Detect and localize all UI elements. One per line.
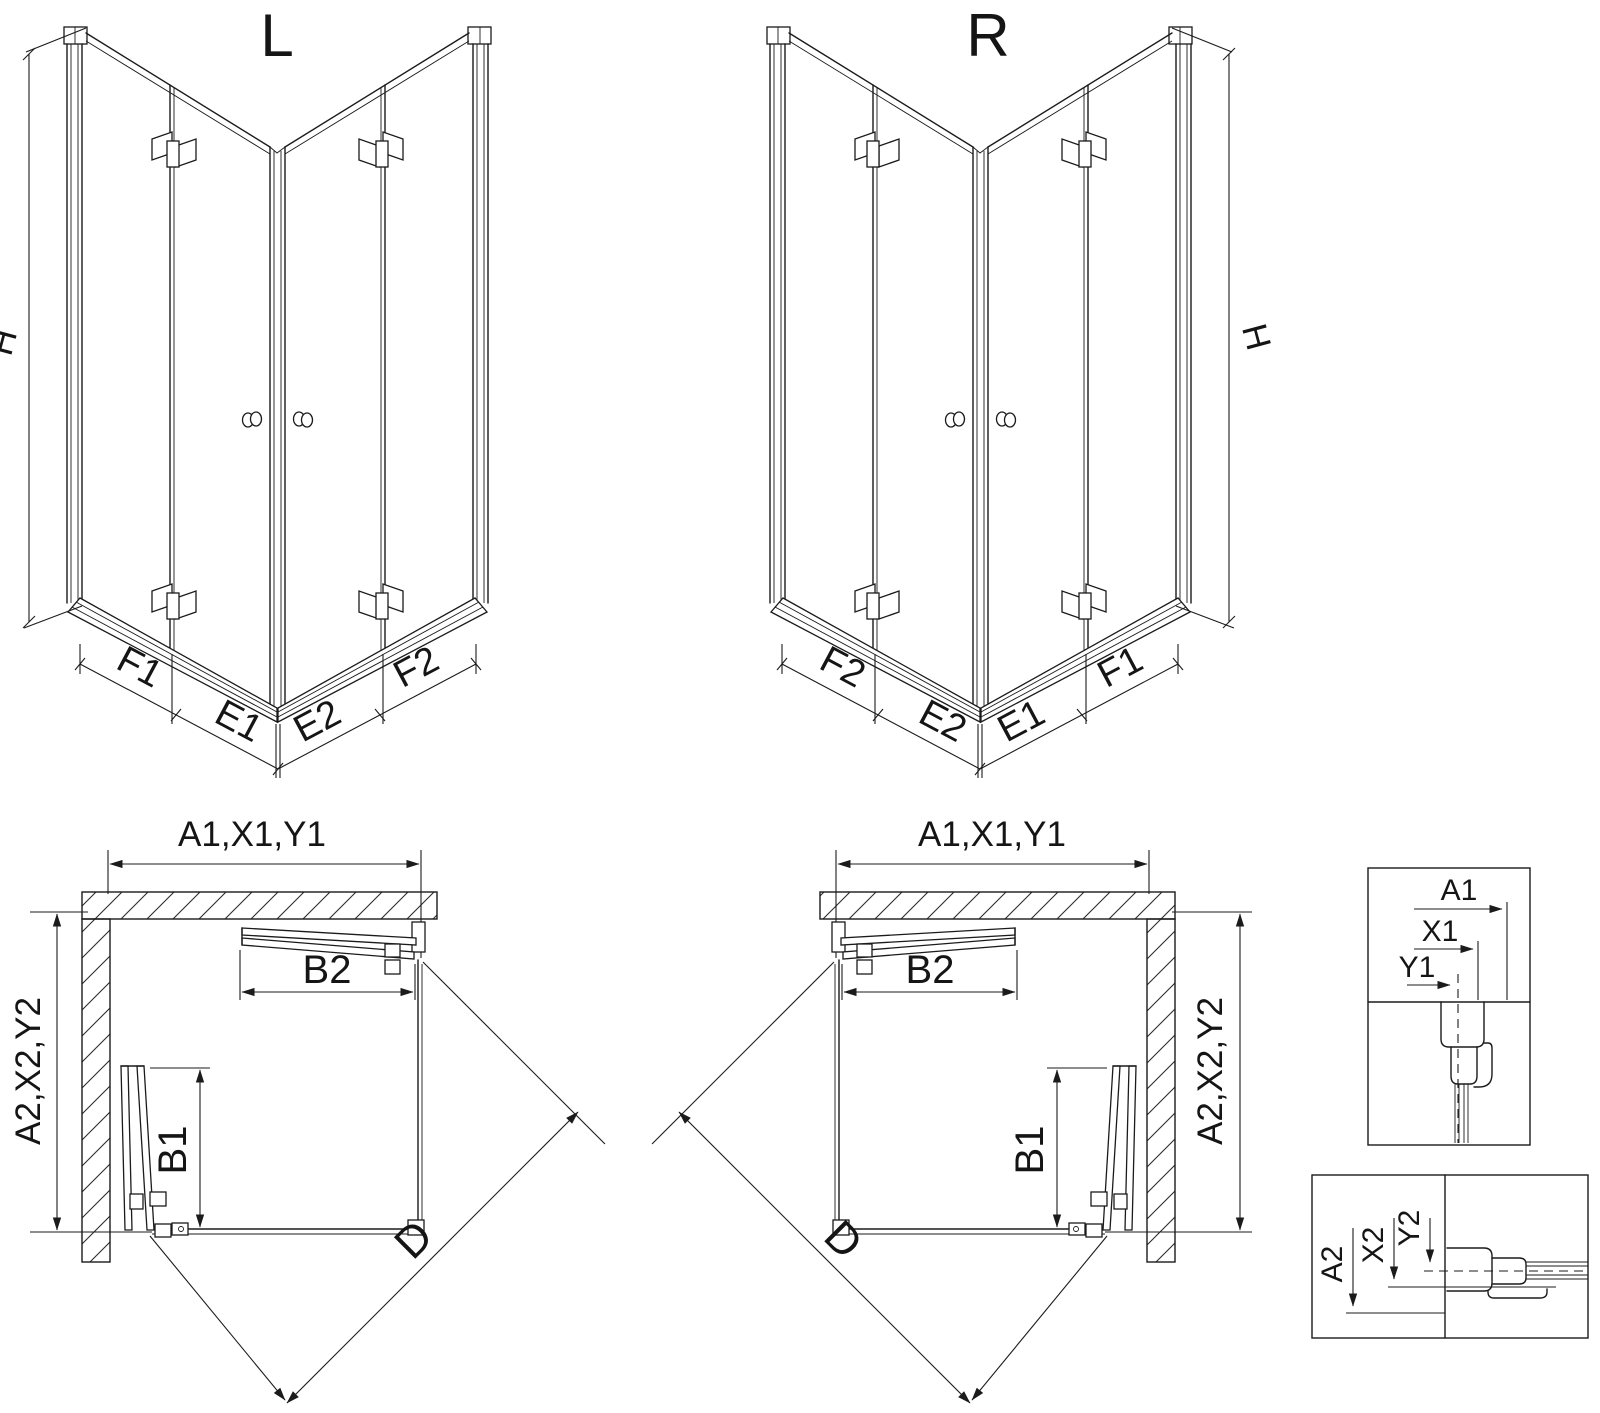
dim-label-height-l: H <box>0 325 25 360</box>
dim-label-diagonal-r: D <box>815 1211 872 1268</box>
dim-label-door-front-r: B2 <box>906 948 955 992</box>
height-dimension-right: H <box>1172 28 1278 628</box>
plan-view-right: A1,X1,Y1 A2,X2,Y2 <box>652 815 1252 1403</box>
technical-drawing-page: L <box>0 0 1600 1413</box>
shower-enclosure-drawing: L <box>0 0 1600 1413</box>
wall-profile-right <box>1169 27 1192 603</box>
detail-label-x2: X2 <box>1357 1227 1390 1264</box>
wall-top <box>82 892 437 919</box>
dim-label-height-r: H <box>1234 320 1278 355</box>
detail-label-a2: A2 <box>1316 1246 1349 1283</box>
dim-label-depth-r: A2,X2,Y2 <box>1191 997 1230 1145</box>
diagonal-dimension: D <box>652 962 1107 1403</box>
iso-right-title: R <box>966 2 1009 69</box>
wall-profile-left <box>64 27 87 603</box>
dim-label-door-side-r: B1 <box>1008 1126 1052 1175</box>
detail-label-y1: Y1 <box>1399 951 1436 984</box>
door-knob-left <box>946 412 965 427</box>
dim-label-door-side-l: B1 <box>151 1126 195 1175</box>
dim-label-diagonal-l: D <box>385 1211 442 1268</box>
detail-view-width: A1 X1 Y1 <box>1368 868 1530 1145</box>
dim-label-width-l: A1,X1,Y1 <box>178 815 326 854</box>
door-knob-right <box>294 412 313 427</box>
door-knob-left <box>243 412 262 427</box>
corner-post <box>973 147 988 708</box>
iso-view-left: L <box>0 2 491 778</box>
height-dimension-left: H <box>0 28 86 628</box>
corner-post <box>270 147 285 708</box>
door-knob-right <box>997 412 1016 427</box>
detail-label-x1: X1 <box>1422 915 1459 948</box>
dim-label-depth-l: A2,X2,Y2 <box>9 997 48 1145</box>
wall-profile-section <box>1441 974 1492 1143</box>
wall-profile-left <box>767 27 790 603</box>
wall-profile-section <box>1424 1248 1588 1298</box>
wall-right <box>1147 919 1175 1262</box>
iso-left-title: L <box>260 2 293 69</box>
diagonal-dimension: D <box>150 962 605 1403</box>
detail-label-y2: Y2 <box>1393 1210 1426 1247</box>
dim-label-door-front-l: B2 <box>303 948 352 992</box>
iso-view-right: R <box>767 2 1278 778</box>
plan-view-left: A1,X1,Y1 A2,X2,Y2 <box>9 815 605 1403</box>
dim-label-width-r: A1,X1,Y1 <box>918 815 1066 854</box>
wall-profile-right <box>468 27 491 603</box>
folded-door-side <box>1069 1066 1136 1237</box>
detail-view-depth: A2 X2 Y2 <box>1312 1175 1588 1338</box>
door-fold-lines <box>170 85 385 652</box>
wall-top <box>820 892 1175 919</box>
door-fold-lines <box>873 85 1088 652</box>
wall-left <box>82 919 110 1262</box>
detail-label-a1: A1 <box>1441 874 1478 907</box>
enclosure-frame <box>152 960 424 1235</box>
enclosure-frame <box>833 960 1105 1235</box>
